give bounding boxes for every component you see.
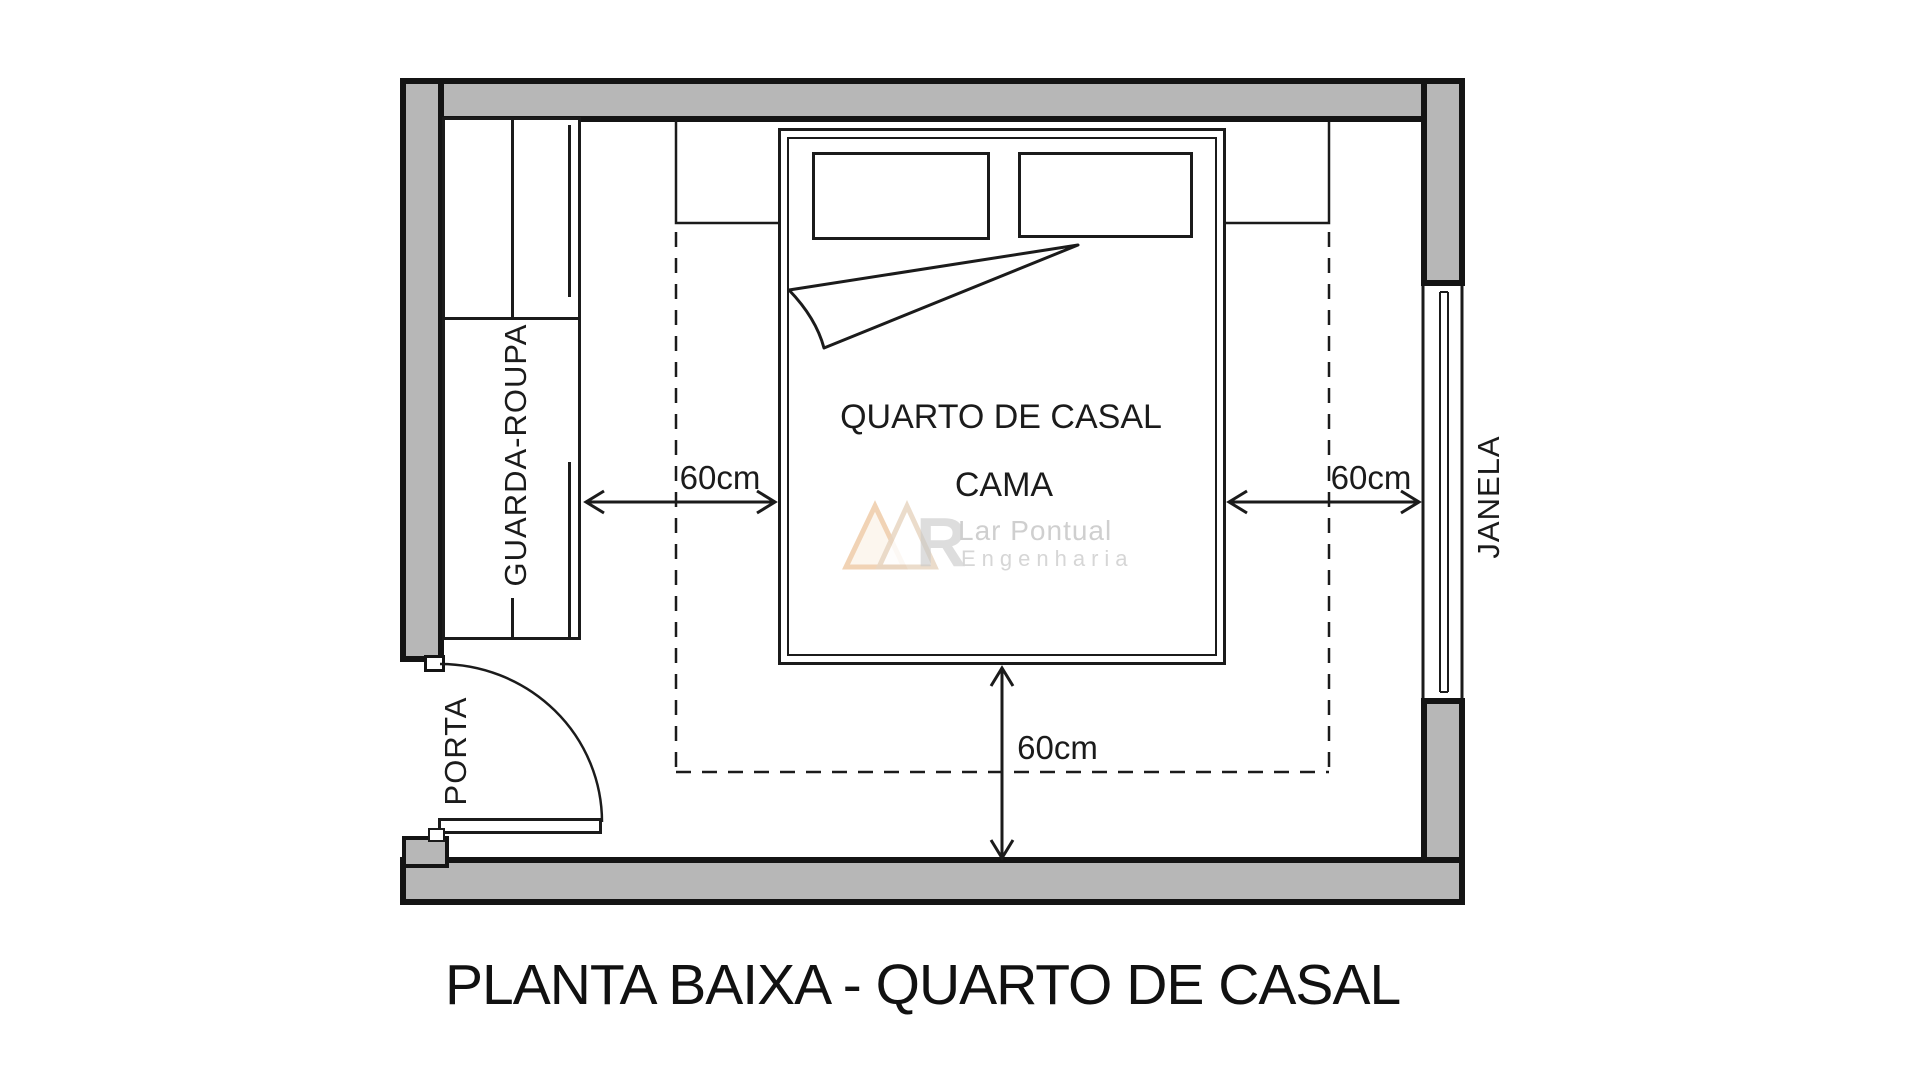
dimension-arrows — [586, 491, 1419, 858]
door-label: PORTA — [438, 697, 474, 806]
dimension-left-label: 60cm — [660, 459, 780, 497]
plan-linework — [0, 0, 1920, 1080]
window-label: JANELA — [1471, 435, 1507, 558]
blanket-fold — [789, 245, 1078, 348]
dimension-right-label: 60cm — [1311, 459, 1431, 497]
bed-label: CAMA — [904, 466, 1104, 505]
floor-plan-canvas: R Lar Pontual Engenharia — [0, 0, 1920, 1080]
room-name-label: QUARTO DE CASAL — [820, 398, 1182, 437]
dimension-bottom-label: 60cm — [1000, 729, 1115, 767]
plan-title: PLANTA BAIXA - QUARTO DE CASAL — [445, 952, 1400, 1018]
wardrobe-label: GUARDA-ROUPA — [498, 324, 534, 587]
